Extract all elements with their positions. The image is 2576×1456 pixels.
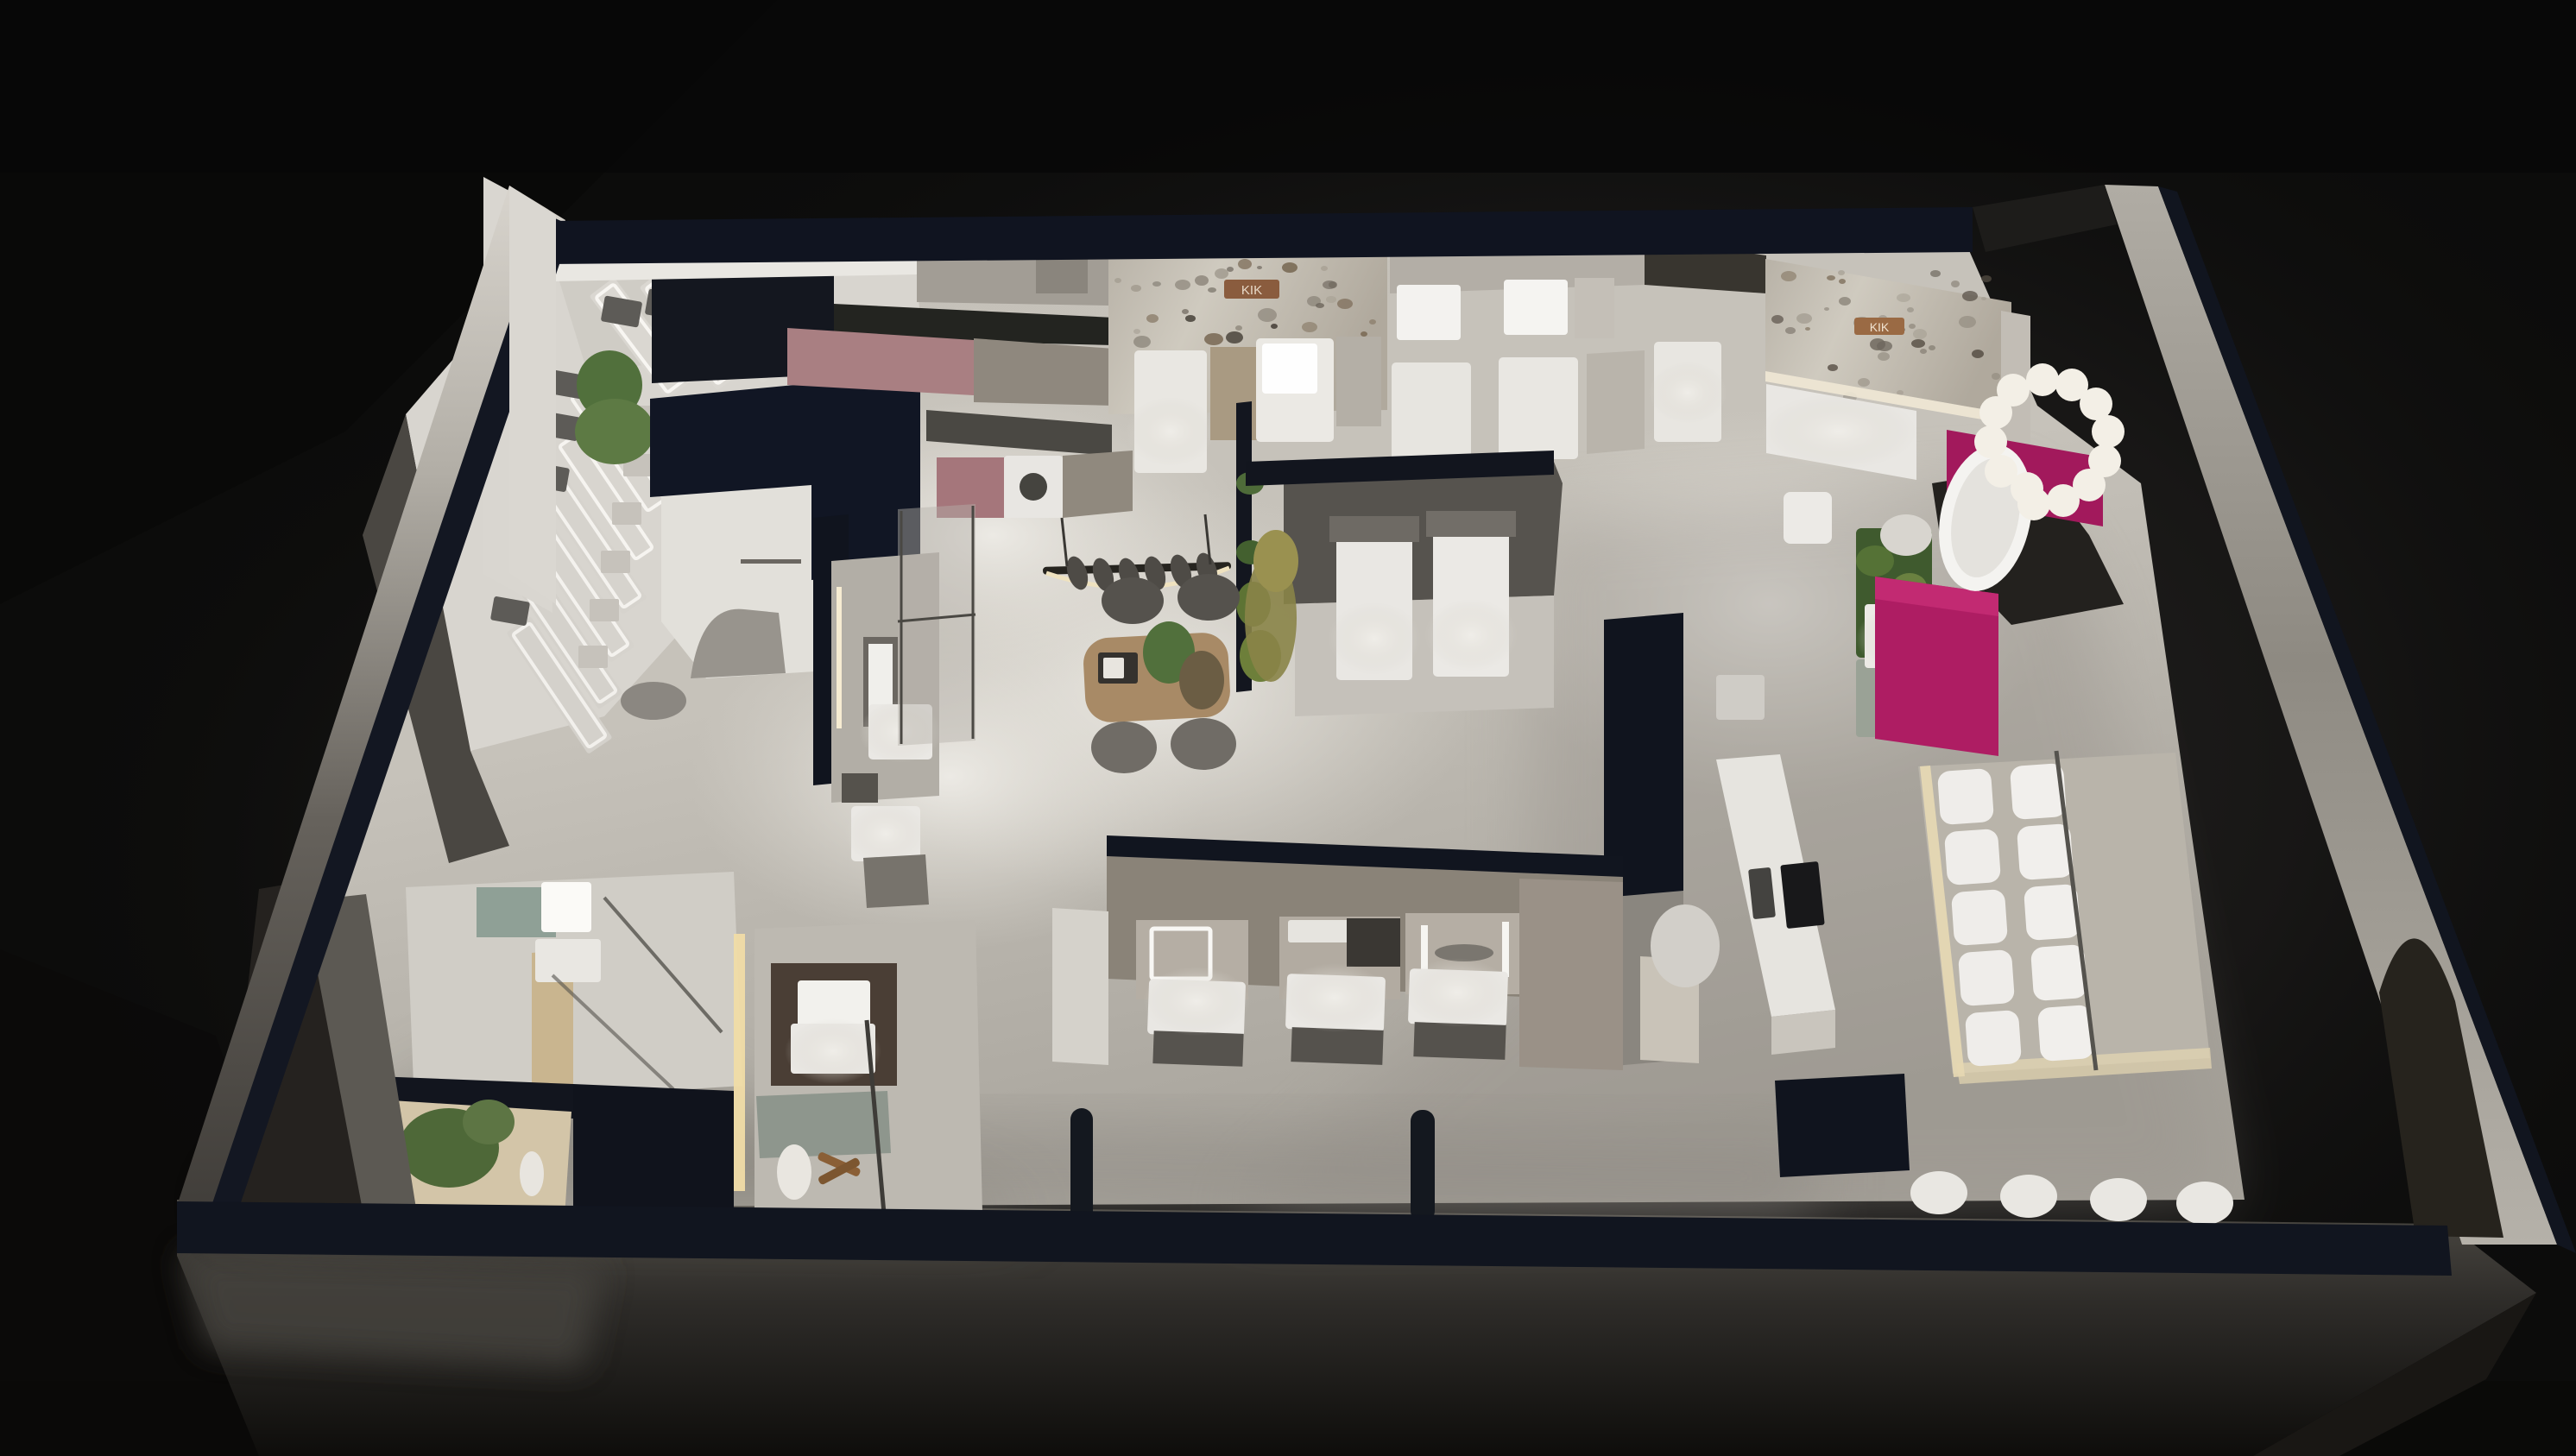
svg-text:KIK: KIK: [1241, 283, 1262, 298]
svg-text:KIK: KIK: [1870, 320, 1890, 334]
